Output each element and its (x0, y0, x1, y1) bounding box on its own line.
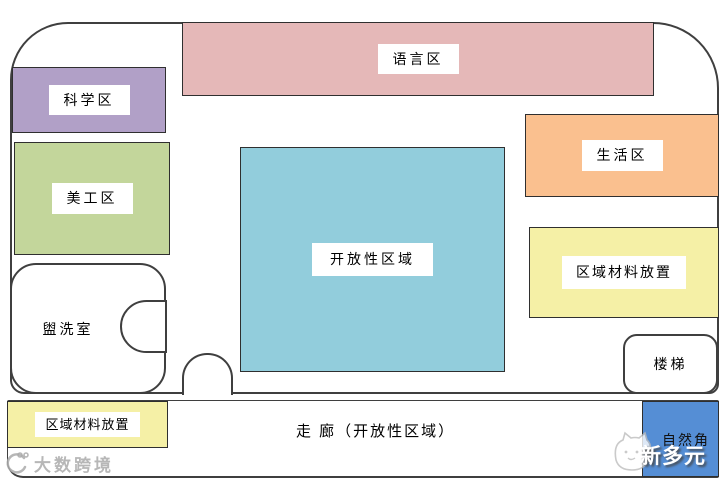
corridor-label: 走 廊（开放性区域） (296, 420, 455, 441)
area-materials-right-label: 区域材料放置 (562, 256, 686, 289)
area-art-label: 美工区 (52, 183, 133, 214)
room-stairs-label: 楼梯 (654, 354, 688, 374)
area-nature-corner: 自然角 (642, 401, 719, 477)
doorway-arch-icon (182, 353, 233, 395)
area-materials-left: 区域材料放置 (7, 401, 168, 448)
area-materials-right: 区域材料放置 (529, 227, 719, 318)
room-washroom-label: 盥洗室 (43, 319, 94, 339)
area-art: 美工区 (14, 142, 170, 255)
classroom-floorplan: 语言区 科学区 美工区 开放性区域 生活区 区域材料放置 盥洗室 楼梯 走 廊（… (0, 0, 724, 487)
washroom-door-icon (120, 300, 167, 353)
area-science-label: 科学区 (49, 85, 130, 116)
area-language: 语言区 (182, 22, 654, 96)
area-language-label: 语言区 (378, 44, 459, 75)
area-open-label: 开放性区域 (312, 243, 433, 276)
area-science: 科学区 (12, 67, 166, 133)
area-living: 生活区 (525, 114, 719, 197)
area-materials-left-label: 区域材料放置 (35, 412, 139, 438)
area-living-label: 生活区 (582, 140, 663, 171)
room-stairs: 楼梯 (623, 334, 718, 394)
area-nature-corner-label: 自然角 (662, 430, 710, 450)
area-open: 开放性区域 (240, 147, 505, 372)
